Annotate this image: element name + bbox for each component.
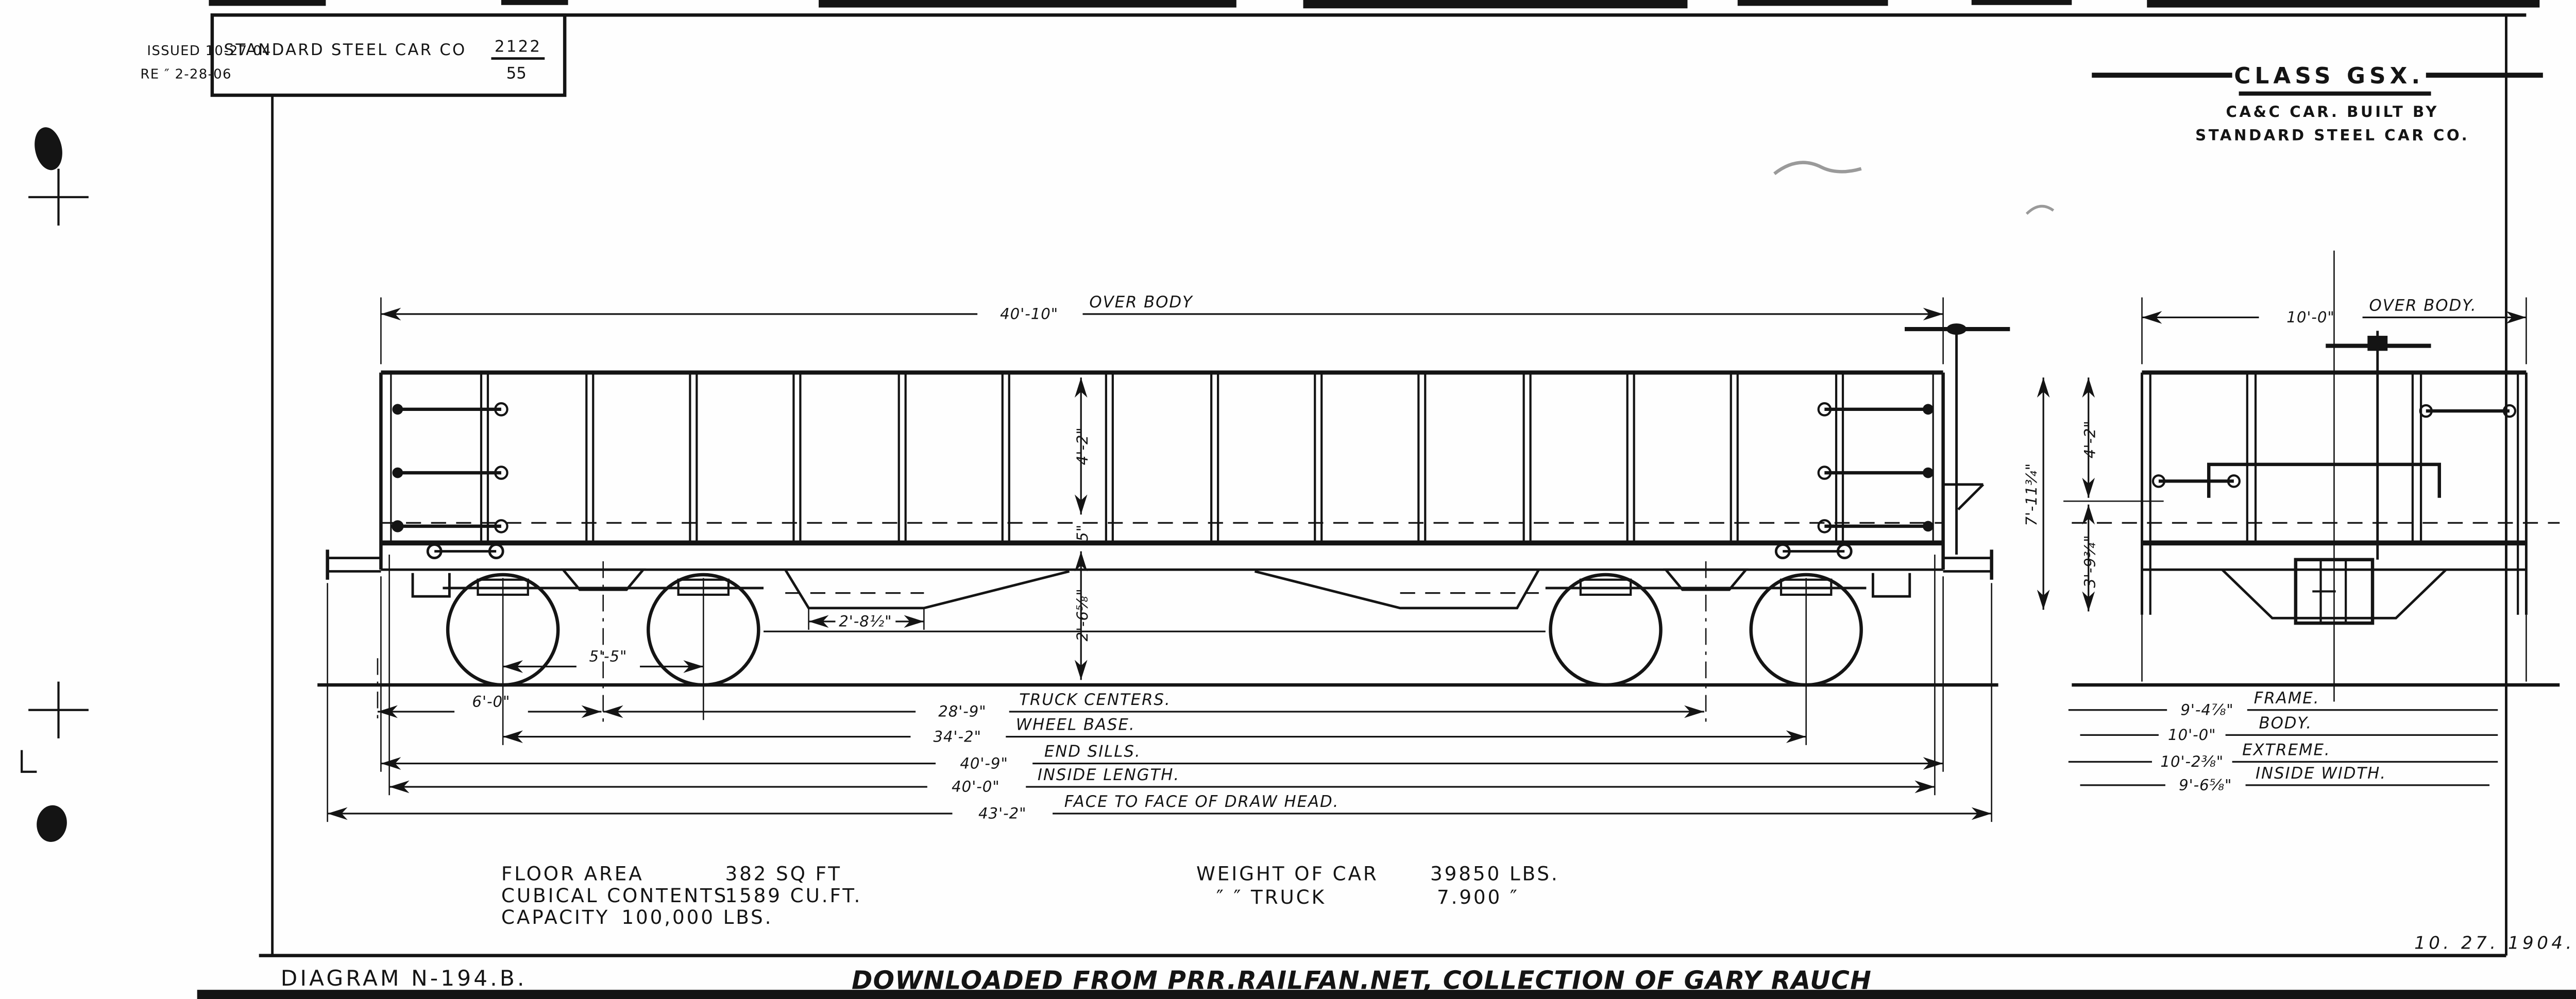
dim-inside-length-value: 40'-0" xyxy=(952,778,1000,796)
diagram-canvas: ISSUED 10-27-04 RE ″ 2-28-06 STANDARD ST… xyxy=(0,0,2576,999)
dim-end-upper-height: 4'-2" xyxy=(2081,420,2099,458)
revised-note: RE ″ 2-28-06 xyxy=(140,66,231,82)
body-stakes xyxy=(481,372,1843,543)
stats-block-weight: WEIGHT OF CAR 39850 LBS. ″ ″ TRUCK 7.900… xyxy=(1196,863,1560,908)
dim-end-sills-value: 40'-9" xyxy=(960,754,1008,772)
sill-step-left xyxy=(413,573,449,596)
side-elevation xyxy=(317,323,2010,685)
dim-end-over-body-value: 10'-0" xyxy=(2286,308,2335,326)
dim-end-over-body-label: OVER BODY. xyxy=(2369,296,2477,315)
drawing-border xyxy=(212,15,2527,955)
brake-staff-end xyxy=(2326,331,2431,559)
dim-end-to-truck: 6'-0" xyxy=(472,693,510,710)
dim-inside-width-label: INSIDE WIDTH. xyxy=(2256,764,2386,783)
grab-irons-left xyxy=(392,403,507,558)
dim-inside-height: 4'-2" xyxy=(1074,427,1091,465)
dim-end-total-height: 7'-11¾" xyxy=(2023,463,2040,526)
drawing-date: 10. 27. 1904. xyxy=(2414,933,2575,954)
dim-truck-centers-label: TRUCK CENTERS. xyxy=(1019,691,1171,709)
dim-hopper-width: 2'-8½" xyxy=(839,613,892,630)
dim-wheel-base-value: 34'-2" xyxy=(933,728,981,745)
punch-hole-mark-bottom xyxy=(35,803,70,844)
dim-frame-value: 9'-4⅞" xyxy=(2180,701,2233,718)
cubical-contents-label: CUBICAL CONTENTS xyxy=(501,884,728,907)
weight-car-label: WEIGHT OF CAR xyxy=(1196,863,1379,885)
dim-inside-length-label: INSIDE LENGTH. xyxy=(1038,766,1180,784)
pencil-check-mark xyxy=(2027,206,2054,214)
coupler-left xyxy=(328,549,381,579)
dim-body-label: BODY. xyxy=(2259,714,2312,732)
pencil-squiggle xyxy=(1774,163,1861,174)
capacity-value: 100,000 LBS. xyxy=(621,906,773,928)
footer-block: DIAGRAM N-194.B. DOWNLOADED FROM PRR.RAI… xyxy=(281,933,2575,995)
dim-floor-depth: 5" xyxy=(1074,524,1091,542)
weight-truck-label: ″ ″ TRUCK xyxy=(1216,886,1326,908)
wheel xyxy=(1550,575,1660,685)
dim-extreme-value: 10'-2⅜" xyxy=(2160,753,2224,770)
dim-extreme-label: EXTREME. xyxy=(2242,740,2331,759)
stats-block-left: FLOOR AREA 382 SQ FT CUBICAL CONTENTS 15… xyxy=(501,863,862,928)
dim-frame-label: FRAME. xyxy=(2254,689,2320,708)
scan-artifacts xyxy=(22,0,2576,999)
brake-staff-side xyxy=(1905,323,2010,555)
dim-face-to-face-value: 43'-2" xyxy=(978,805,1027,822)
dim-wheel-base-label: WHEEL BASE. xyxy=(1016,716,1136,734)
title-block: CLASS GSX. CA&C CAR. BUILT BY STANDARD S… xyxy=(2092,63,2543,144)
registration-cross-top xyxy=(28,169,89,226)
weight-car-value: 39850 LBS. xyxy=(1430,863,1560,885)
dim-end-sills-label: END SILLS. xyxy=(1044,743,1141,761)
header-block: ISSUED 10-27-04 RE ″ 2-28-06 STANDARD ST… xyxy=(140,38,545,83)
end-step-board xyxy=(2209,464,2439,498)
dim-end-lower-height: 3'-9¾" xyxy=(2081,535,2099,588)
dim-body-value: 10'-0" xyxy=(2168,726,2216,744)
built-by-line1: CA&C CAR. BUILT BY xyxy=(2226,103,2438,120)
capacity-label: CAPACITY xyxy=(501,906,609,928)
dim-over-body-label: OVER BODY xyxy=(1089,293,1193,312)
class-title: CLASS GSX. xyxy=(2234,63,2424,89)
grab-irons-right xyxy=(1776,403,1933,558)
built-by-line2: STANDARD STEEL CAR CO. xyxy=(2195,127,2469,144)
builder-box-title: STANDARD STEEL CAR CO xyxy=(224,41,467,59)
lot-number: 2122 xyxy=(495,38,541,56)
registration-cross-bottom xyxy=(28,682,89,738)
diagram-number: DIAGRAM N-194.B. xyxy=(281,966,527,991)
sill-step-right xyxy=(1873,573,1909,596)
watermark-text: DOWNLOADED FROM PRR.RAILFAN.NET, COLLECT… xyxy=(852,967,1872,995)
dim-sill-to-rail: 2'-6⅝" xyxy=(1074,588,1091,641)
scanned-diagram-sheet: ISSUED 10-27-04 RE ″ 2-28-06 STANDARD ST… xyxy=(0,0,2576,999)
cubical-contents-value: 1589 CU.FT. xyxy=(725,884,862,907)
dim-face-to-face-label: FACE TO FACE OF DRAW HEAD. xyxy=(1064,793,1340,811)
floor-area-value: 382 SQ FT xyxy=(725,863,842,885)
lot-denominator: 55 xyxy=(506,64,527,82)
punch-hole-mark-top xyxy=(31,125,66,173)
dim-wheel-spacing: 5'-5" xyxy=(589,648,627,665)
floor-area-label: FLOOR AREA xyxy=(501,863,644,885)
dim-truck-centers-value: 28'-9" xyxy=(938,703,987,720)
drop-bottom-right xyxy=(1255,570,1538,608)
weight-truck-value: 7.900 ″ xyxy=(1437,886,1519,908)
dim-over-body-value: 40'-10" xyxy=(1000,305,1058,323)
corner-tick-mark xyxy=(22,750,37,772)
dim-inside-width-value: 9'-6⅝" xyxy=(2179,776,2232,794)
coupler-right xyxy=(1943,549,1992,579)
